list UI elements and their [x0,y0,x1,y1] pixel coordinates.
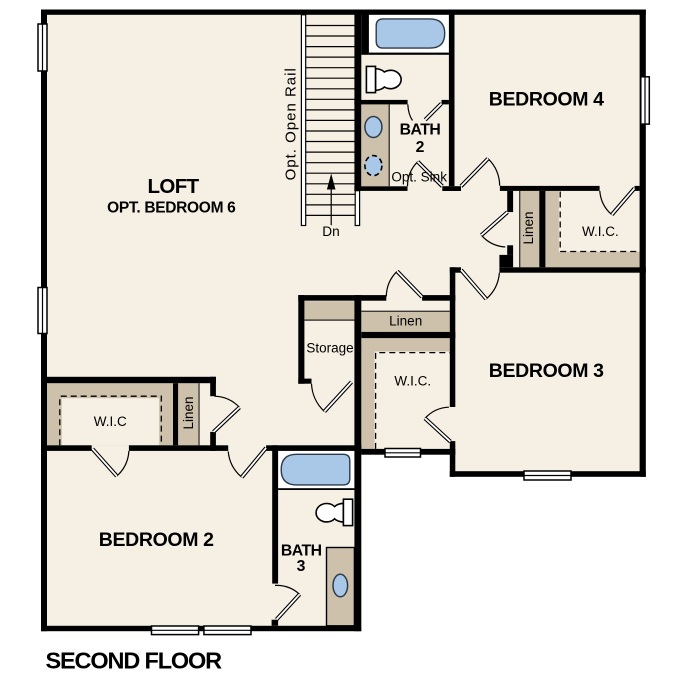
svg-text:Dn: Dn [322,224,340,239]
svg-text:Opt. Sink: Opt. Sink [391,170,447,185]
svg-text:BEDROOM 4: BEDROOM 4 [489,88,604,110]
svg-text:Linen: Linen [521,211,536,244]
svg-text:Linen: Linen [389,313,422,328]
svg-text:Linen: Linen [181,396,196,429]
svg-text:BEDROOM 3: BEDROOM 3 [489,360,604,382]
svg-text:Opt. Open Rail: Opt. Open Rail [282,67,299,180]
svg-text:W.I.C: W.I.C [94,414,127,429]
svg-text:3: 3 [297,558,306,575]
svg-text:BEDROOM 2: BEDROOM 2 [99,529,214,551]
svg-text:SECOND FLOOR: SECOND FLOOR [46,648,223,674]
svg-text:Storage: Storage [306,341,353,356]
svg-text:W.I.C.: W.I.C. [394,373,431,388]
svg-text:BATH: BATH [400,122,441,139]
svg-text:W.I.C.: W.I.C. [582,224,619,239]
svg-text:2: 2 [416,139,425,156]
svg-text:OPT. BEDROOM 6: OPT. BEDROOM 6 [107,199,236,216]
svg-text:LOFT: LOFT [147,175,199,198]
